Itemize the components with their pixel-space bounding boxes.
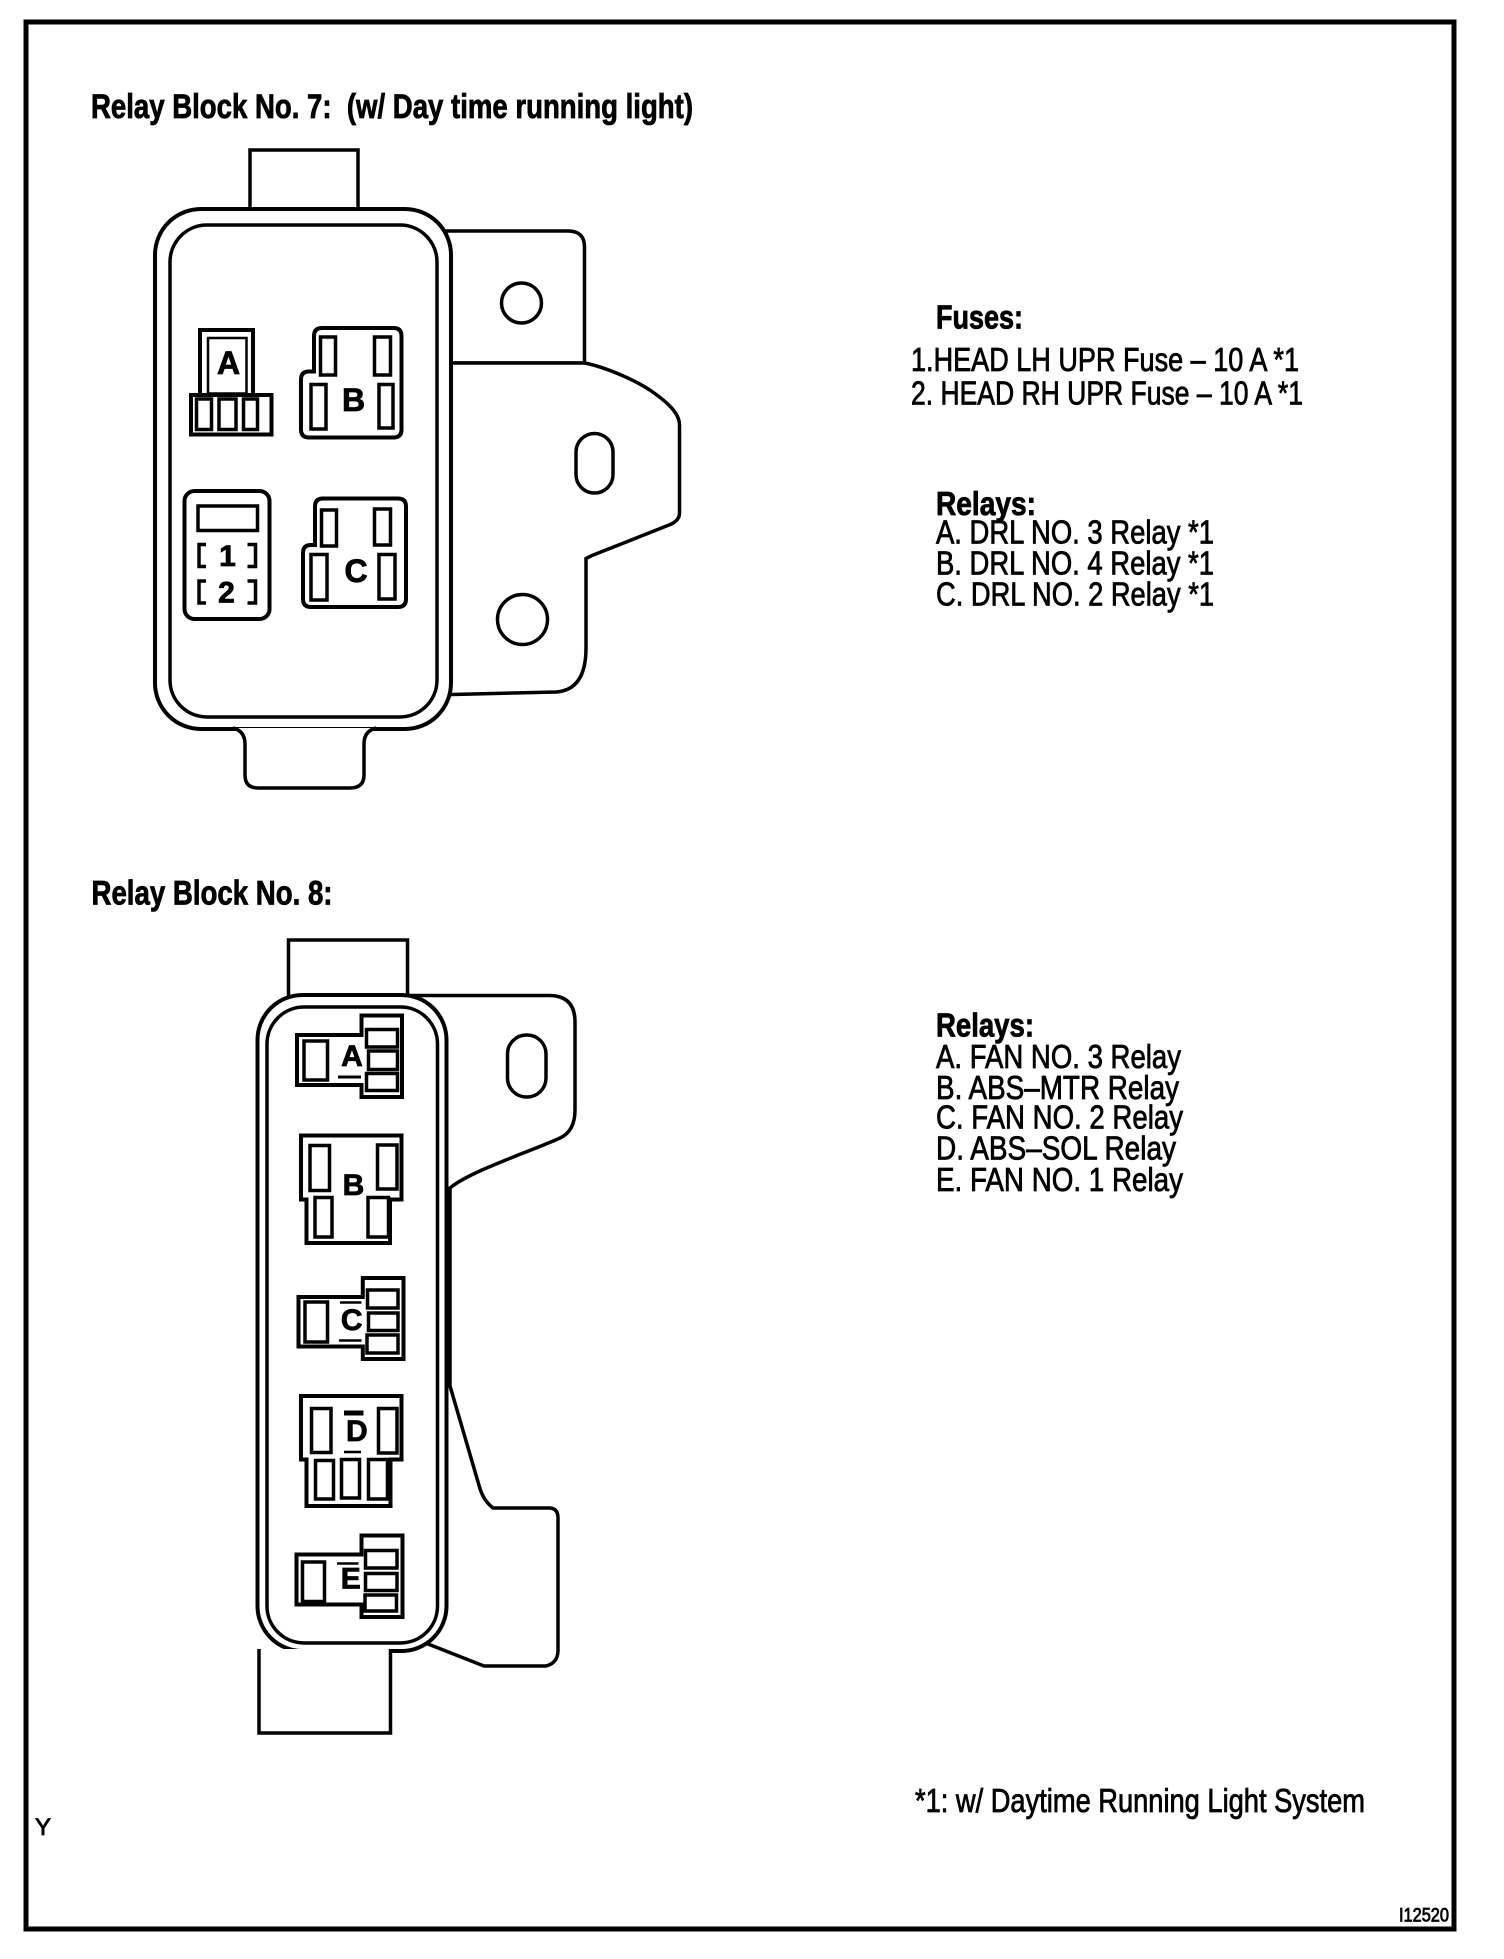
svg-text:1: 1	[219, 540, 236, 573]
svg-text:E. FAN NO. 1 Relay: E. FAN NO. 1 Relay	[936, 1161, 1183, 1198]
svg-text:1.HEAD LH UPR Fuse – 10 A *1: 1.HEAD LH UPR Fuse – 10 A *1	[911, 341, 1299, 378]
svg-text:2. HEAD RH UPR Fuse – 10 A *1: 2. HEAD RH UPR Fuse – 10 A *1	[911, 375, 1303, 412]
svg-text:D: D	[346, 1415, 368, 1448]
svg-text:C. DRL NO. 2 Relay *1: C. DRL NO. 2 Relay *1	[936, 576, 1214, 613]
svg-text:*1: w/ Daytime Running Light S: *1: w/ Daytime Running Light System	[915, 1782, 1365, 1819]
svg-text:2: 2	[218, 577, 235, 610]
svg-text:C: C	[341, 1304, 363, 1337]
svg-text:Fuses:: Fuses:	[936, 299, 1023, 336]
svg-text:A: A	[217, 345, 240, 381]
svg-text:Y: Y	[35, 1814, 51, 1841]
svg-text:Relay Block No. 8:: Relay Block No. 8:	[92, 875, 333, 913]
svg-text:E: E	[341, 1563, 361, 1596]
svg-text:B: B	[343, 1169, 365, 1202]
svg-text:B: B	[342, 382, 365, 418]
svg-text:Relay Block No. 7: (w/ Day ti: Relay Block No. 7: (w/ Day time running …	[91, 88, 693, 126]
svg-text:I12520: I12520	[1399, 1906, 1449, 1927]
svg-text:A: A	[341, 1040, 363, 1073]
svg-text:C: C	[344, 553, 367, 589]
